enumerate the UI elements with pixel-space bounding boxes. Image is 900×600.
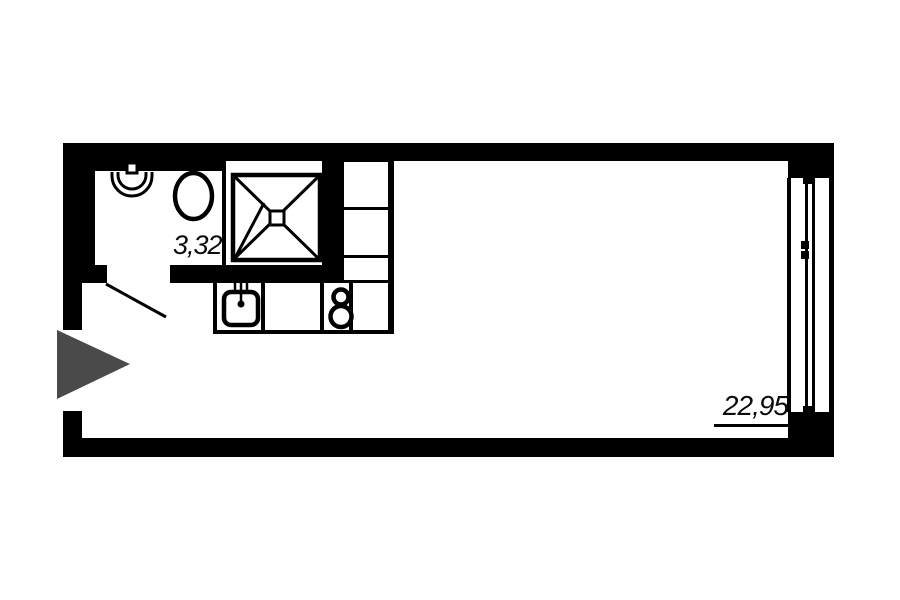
floor-plan: 3,32 22,95 (0, 0, 900, 600)
door-swing-line (106, 284, 166, 317)
shower-icon (233, 175, 320, 260)
entrance-arrow-icon (57, 330, 130, 399)
washbasin-icon (112, 163, 152, 196)
kitchen-sink-icon (224, 283, 258, 325)
toilet-icon (175, 173, 212, 219)
main-room-area-label: 22,95 (714, 390, 788, 427)
bathroom-area-label: 3,32 (173, 230, 222, 261)
fixtures-layer (0, 0, 900, 600)
stove-burners-icon (331, 290, 352, 328)
